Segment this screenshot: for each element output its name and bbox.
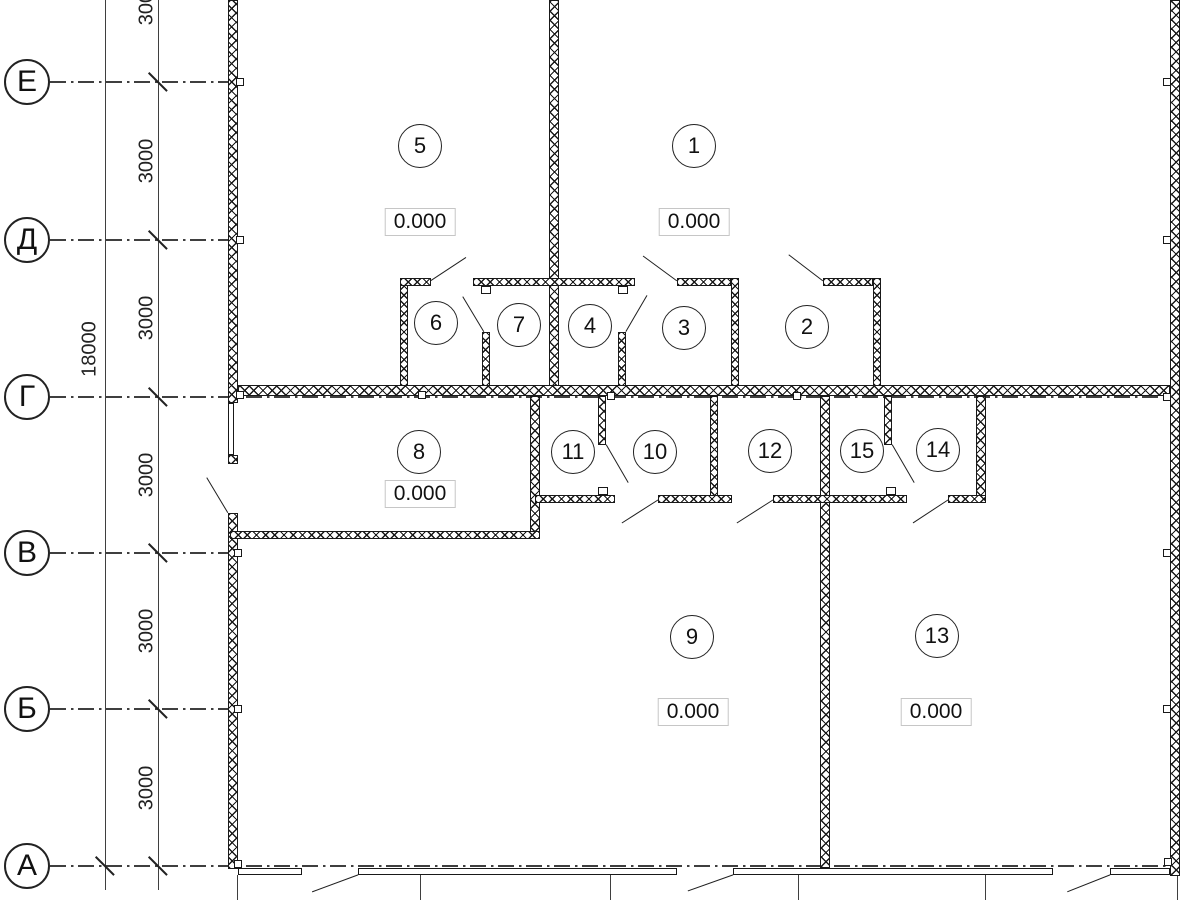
room8-bottom-wall (230, 531, 540, 539)
partition-15-14 (884, 396, 892, 445)
door-swing (206, 478, 228, 514)
partition-11-10 (598, 396, 606, 445)
segment-dim-line (158, 0, 159, 890)
bottom-window-1 (238, 868, 302, 875)
room-number-15: 15 (840, 429, 884, 473)
segment-dimension-text: 3000 (136, 453, 159, 498)
bottom-window-3 (733, 868, 1053, 875)
room-number-13: 13 (915, 614, 959, 658)
room6-left-wall (400, 278, 408, 386)
room-number-8: 8 (397, 430, 441, 474)
column-mark (793, 392, 801, 400)
column-mark (234, 549, 242, 557)
lower-bottom-wall-4 (948, 495, 986, 503)
bottom-window-4 (1110, 868, 1170, 875)
room-number-11: 11 (551, 430, 595, 474)
elevation-label-room-9: 0.000 (658, 698, 729, 726)
column-mark (234, 705, 242, 713)
column-mark (1163, 236, 1171, 244)
left-wall-lower (228, 513, 238, 869)
grid-stub (1177, 875, 1178, 900)
wall-3-2 (731, 278, 739, 386)
axis-line-В (50, 552, 238, 553)
segment-dimension-text: 3000 (136, 0, 159, 25)
axis-line-Д (50, 239, 238, 240)
axis-bubble-А: А (4, 843, 50, 889)
grid-stub (985, 875, 986, 900)
elevation-label-room-1: 0.000 (659, 208, 730, 236)
door-stop (618, 286, 628, 294)
wall-9-13 (820, 396, 830, 868)
door-swing (622, 499, 659, 523)
overall-dim-line (105, 0, 106, 890)
room-number-3: 3 (662, 306, 706, 350)
center-wall (549, 0, 559, 390)
segment-dimension-text: 3000 (136, 296, 159, 341)
wall-10-12 (710, 396, 718, 503)
partition-4-3 (618, 332, 626, 386)
axis-bubble-Б: Б (4, 686, 50, 732)
elevation-label-room-8: 0.000 (385, 480, 456, 508)
room-number-6: 6 (414, 301, 458, 345)
axis-line-Б (50, 708, 238, 709)
room-number-9: 9 (670, 615, 714, 659)
column-mark (236, 236, 244, 244)
upper-top-wall-3 (677, 278, 731, 286)
elevation-label-room-5: 0.000 (385, 208, 456, 236)
door-swing (462, 297, 484, 333)
right-wall (1170, 0, 1180, 876)
door-swing (1067, 874, 1111, 892)
axis-bubble-Г: Г (4, 374, 50, 420)
door-swing (789, 254, 824, 281)
column-mark (418, 391, 426, 399)
door-swing (605, 445, 628, 484)
door-swing (891, 445, 914, 484)
room-number-12: 12 (748, 429, 792, 473)
grid-stub (610, 875, 611, 900)
room-number-4: 4 (568, 304, 612, 348)
door-swing (913, 499, 949, 523)
axis-bubble-В: В (4, 530, 50, 576)
room14-right-wall (976, 396, 986, 503)
left-wall-pier (228, 455, 238, 464)
column-mark (1164, 858, 1172, 866)
left-window (228, 403, 234, 455)
door-stop (886, 487, 896, 495)
partition-6-7 (482, 332, 490, 386)
elevation-label-room-13: 0.000 (901, 698, 972, 726)
room8-right-wall (530, 396, 540, 539)
upper-top-wall-4 (823, 278, 873, 286)
room2-right-wall (873, 278, 881, 386)
lower-bottom-wall-2 (658, 495, 732, 503)
axis-bubble-Е: Е (4, 59, 50, 105)
door-stop (598, 487, 608, 495)
grid-stub (798, 875, 799, 900)
door-swing (688, 874, 733, 891)
bottom-window-2 (358, 868, 677, 875)
door-swing (431, 257, 467, 281)
room-number-1: 1 (672, 124, 716, 168)
segment-dimension-text: 3000 (136, 139, 159, 184)
segment-dimension-text: 3000 (136, 609, 159, 654)
axis-line-А (50, 865, 1180, 866)
door-stop (481, 286, 491, 294)
upper-top-wall-2 (473, 278, 635, 286)
upper-top-wall-1 (400, 278, 431, 286)
lower-bottom-wall-3 (773, 495, 907, 503)
column-mark (1163, 549, 1171, 557)
lower-bottom-wall-1 (535, 495, 615, 503)
axis-g-wall (238, 385, 1170, 396)
door-swing (625, 296, 647, 333)
door-swing (737, 499, 774, 523)
room-number-14: 14 (916, 428, 960, 472)
left-wall-upper (228, 0, 238, 403)
room-number-7: 7 (497, 303, 541, 347)
column-mark (1163, 393, 1171, 401)
room-number-5: 5 (398, 124, 442, 168)
axis-line-Г (50, 396, 1180, 397)
column-mark (236, 391, 244, 399)
column-mark (236, 78, 244, 86)
column-mark (1163, 78, 1171, 86)
door-swing (643, 255, 678, 281)
segment-dimension-text: 3000 (136, 766, 159, 811)
column-mark (1163, 705, 1171, 713)
axis-line-Е (50, 81, 238, 82)
column-mark (234, 860, 242, 868)
room-number-2: 2 (785, 305, 829, 349)
column-mark (607, 392, 615, 400)
grid-stub (420, 875, 421, 900)
door-swing (312, 874, 358, 892)
axis-bubble-Д: Д (4, 217, 50, 263)
room-number-10: 10 (633, 430, 677, 474)
floor-plan-drawing: ЕДГВБА1800030003000300030003000300051674… (0, 0, 1200, 900)
overall-dimension-text: 18000 (79, 321, 102, 377)
grid-stub (237, 875, 238, 900)
